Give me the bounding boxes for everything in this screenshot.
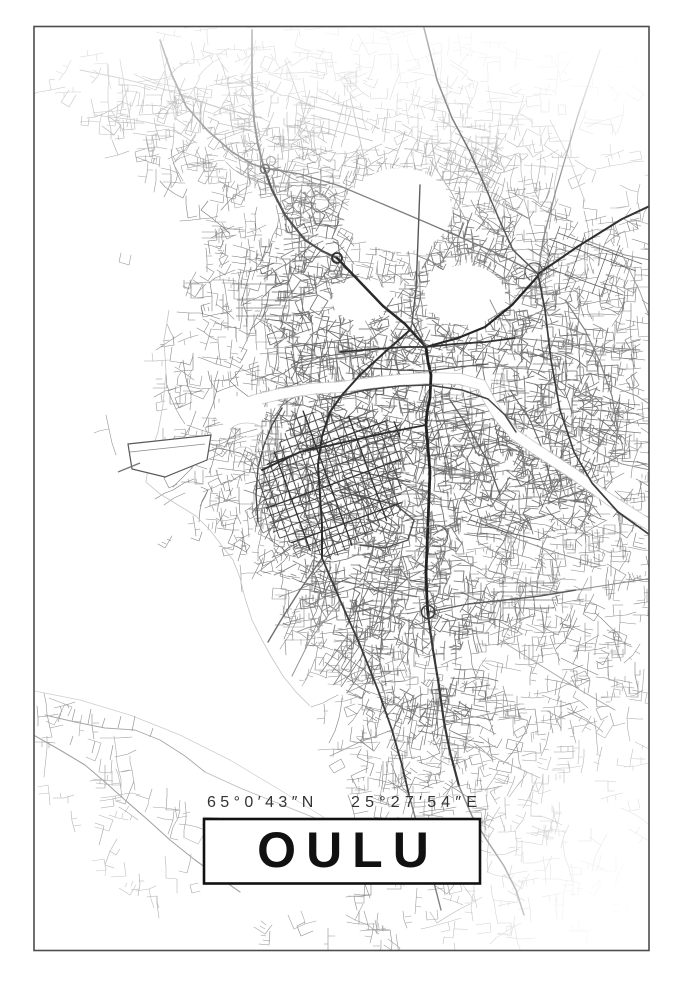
svg-text:OULU: OULU xyxy=(257,822,439,878)
svg-text:65°0′43″N: 65°0′43″N xyxy=(207,794,318,811)
svg-text:25°27′54″E: 25°27′54″E xyxy=(351,794,482,811)
